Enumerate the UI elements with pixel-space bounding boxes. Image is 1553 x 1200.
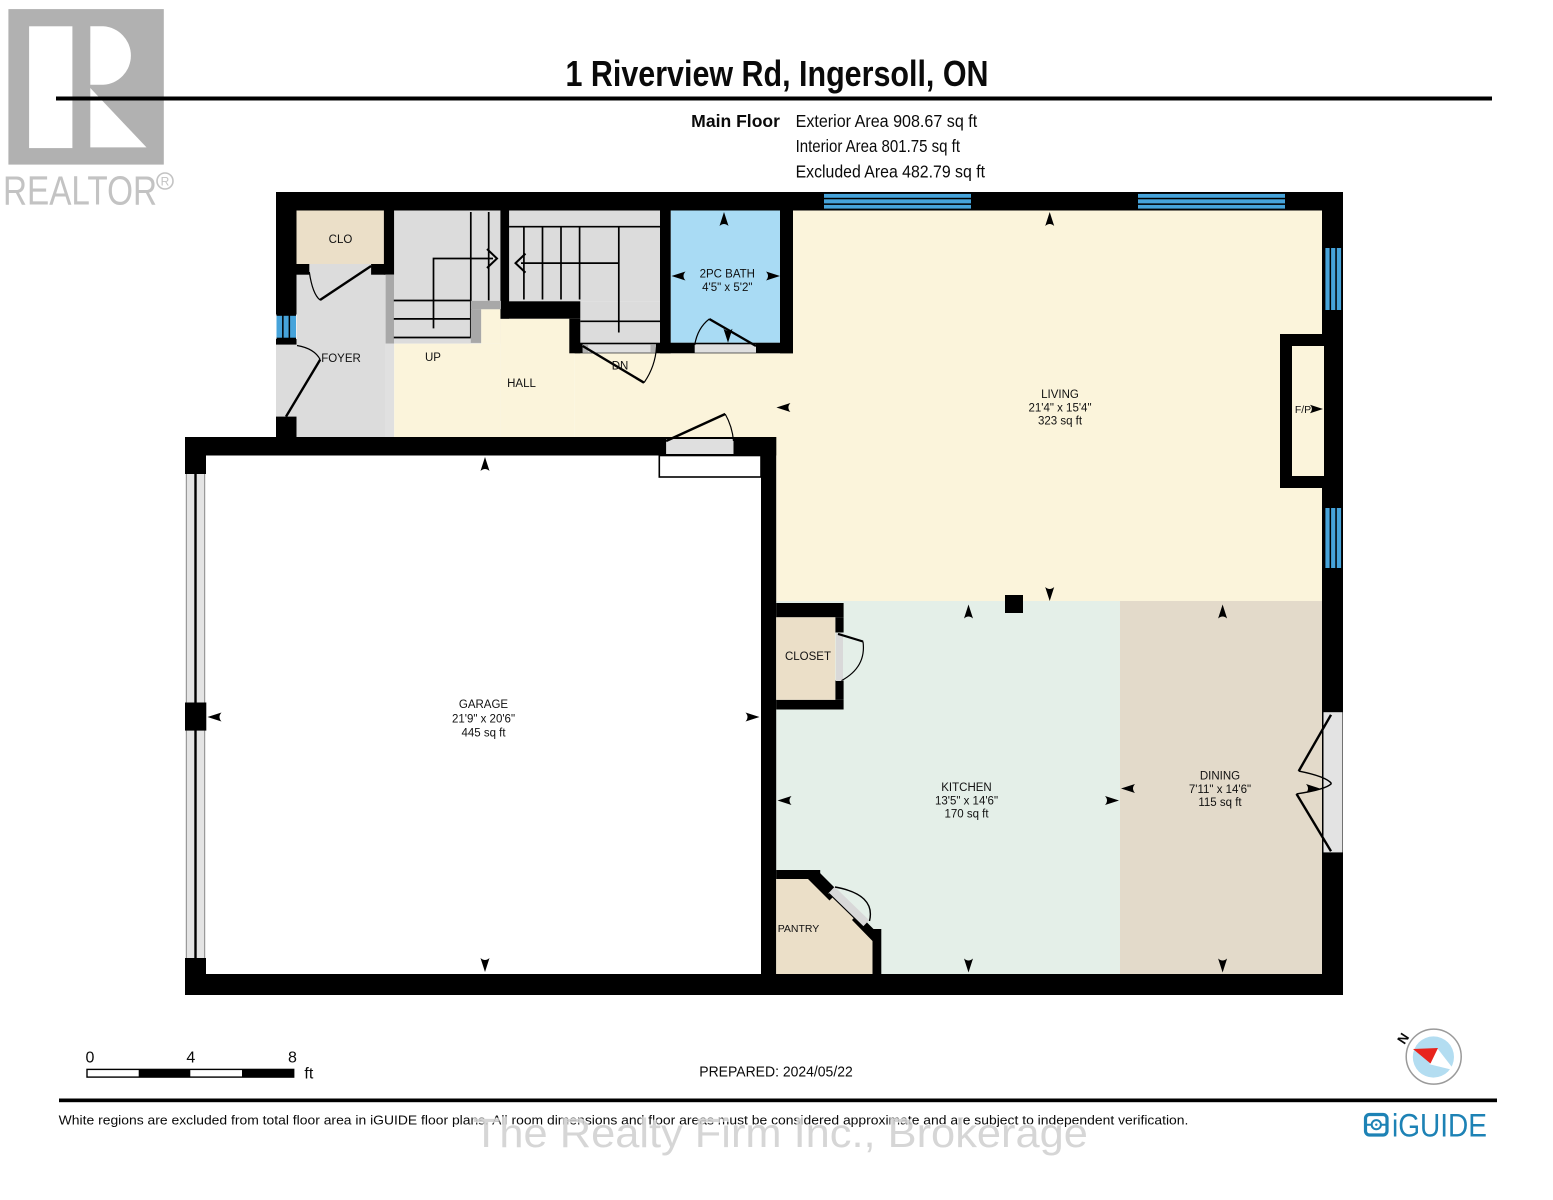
svg-text:DINING: DINING: [1200, 771, 1240, 783]
svg-text:8: 8: [288, 1049, 297, 1066]
svg-text:445 sq ft: 445 sq ft: [461, 728, 506, 740]
svg-text:Interior Area 801.75 sq ft: Interior Area 801.75 sq ft: [796, 136, 961, 156]
svg-text:CLOSET: CLOSET: [785, 651, 831, 663]
svg-text:115 sq ft: 115 sq ft: [1198, 797, 1242, 809]
svg-text:FOYER: FOYER: [321, 353, 361, 365]
svg-text:KITCHEN: KITCHEN: [941, 782, 991, 794]
svg-text:The Realty Firm Inc., Brokerag: The Realty Firm Inc., Brokerage: [473, 1110, 1088, 1156]
svg-text:Exterior Area 908.67 sq ft: Exterior Area 908.67 sq ft: [796, 111, 978, 131]
svg-text:LIVING: LIVING: [1041, 389, 1079, 401]
svg-text:21'9" x 20'6": 21'9" x 20'6": [452, 714, 515, 726]
svg-text:REALTOR: REALTOR: [3, 168, 157, 214]
svg-text:Excluded Area 482.79 sq ft: Excluded Area 482.79 sq ft: [796, 161, 986, 181]
svg-text:UP: UP: [425, 352, 441, 364]
svg-text:323 sq ft: 323 sq ft: [1038, 416, 1083, 428]
svg-text:PREPARED: 2024/05/22: PREPARED: 2024/05/22: [699, 1065, 853, 1081]
svg-text:4'5" x 5'2": 4'5" x 5'2": [702, 282, 752, 294]
svg-text:Main Floor: Main Floor: [691, 111, 780, 131]
svg-text:170 sq ft: 170 sq ft: [944, 809, 989, 821]
svg-text:ft: ft: [304, 1066, 313, 1083]
svg-text:GARAGE: GARAGE: [459, 699, 509, 711]
svg-text:DN: DN: [612, 361, 629, 373]
svg-text:7'11" x 14'6": 7'11" x 14'6": [1189, 784, 1251, 796]
svg-text:13'5" x 14'6": 13'5" x 14'6": [935, 796, 998, 808]
svg-text:F/P: F/P: [1295, 404, 1311, 416]
svg-text:0: 0: [86, 1049, 95, 1066]
svg-text:CLO: CLO: [329, 234, 353, 246]
svg-text:4: 4: [186, 1049, 195, 1066]
svg-text:iGUIDE: iGUIDE: [1392, 1108, 1487, 1144]
svg-text:21'4" x 15'4": 21'4" x 15'4": [1028, 403, 1091, 415]
svg-text:R: R: [161, 175, 170, 189]
svg-text:HALL: HALL: [507, 378, 536, 390]
svg-text:PANTRY: PANTRY: [778, 923, 820, 935]
svg-text:2PC BATH: 2PC BATH: [700, 269, 755, 281]
svg-text:1 Riverview Rd, Ingersoll, ON: 1 Riverview Rd, Ingersoll, ON: [566, 53, 989, 94]
